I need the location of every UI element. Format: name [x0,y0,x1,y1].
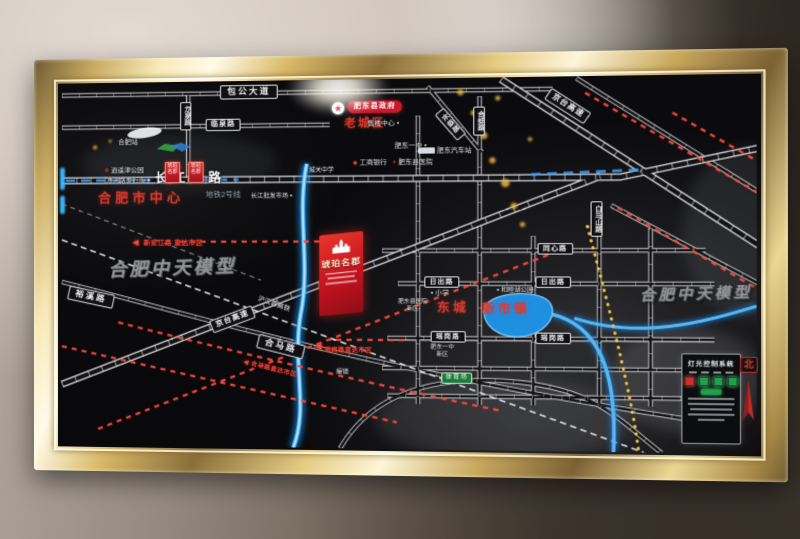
compass-north-label: 北 [740,357,758,373]
dot-icon: ● [290,193,293,198]
road-label-baimashan: 白马山路 [591,201,603,237]
panel-text-line [688,398,734,401]
poi-county-hospital: 肥东县医院 [398,159,432,166]
poi-huaihe-walkstreet: 淮河路步行街 [106,177,145,184]
showroom-photo: 合肥中天模型 合肥中天模型 包公大道 临泉路 龙泉路 合肥站 ❋ 逍遥津公园 淮… [0,0,800,539]
label-dongcheng: 东城 [437,301,469,315]
direction-yaogang: 瑶岗路直达市区 [324,348,372,355]
bank-icon: ◆ [353,160,358,166]
blue-led-bars [60,168,65,214]
dot-icon: ● [424,142,427,147]
panel-text-line [698,419,725,421]
road-label-baogong: 包公大道 [220,85,278,100]
hospital-cross-icon: + [393,160,397,166]
marker-phone-bar [326,280,357,285]
arrow-left-icon: ◀ [132,238,138,247]
poi-bus-station: 肥东汽车站 [437,147,472,155]
road-label-hebeng: 合蚌路 [473,107,485,136]
panel-button-1 [699,377,709,387]
road-label-richu-e: 日出路 [535,276,570,288]
poi-chengguan-school: 城关中学 [309,168,334,175]
poi-hefei-station: 合肥站 [118,139,138,147]
panel-captions [689,371,733,373]
project-marker: 琥珀名郡 [319,231,363,316]
project-marker-name: 琥珀名郡 [321,255,361,271]
watermark-right: 合肥中天模型 [639,283,752,303]
poi-primary-school: 小学 [435,290,449,297]
light-control-panel: 灯光控制系统 [681,353,741,444]
poi-feidong-no1: 肥东一中 [395,142,422,149]
dot-icon: ● [431,290,434,295]
arrow-left-icon: ◀ [315,342,321,351]
poi-sales-center: 售楼中心 [367,120,394,127]
road-label-linquan: 临泉路 [206,119,241,132]
project-banner-a: 琥珀名郡 [165,162,180,183]
watermark-left: 合肥中天模型 [108,256,237,281]
poi-xiaoyaojin: 逍遥津公园 [111,167,144,174]
road-label-tongxin: 同心路 [538,243,573,255]
panel-text-line [688,403,734,406]
road-label-yaogang-w: 瑶岗路 [431,331,466,343]
dot-icon: ● [397,120,400,125]
marker-tagline-bar [328,275,355,280]
building-logo-icon [330,237,353,255]
road-label-yaogang-e: 瑶岗路 [535,333,570,345]
panel-button-power [685,376,695,386]
poi-hospital-new: 肥东县医院新区 [395,299,431,314]
park-icon: ❋ [104,168,109,174]
poi-icbc: 工商银行 [359,159,386,166]
poi-cuozhen: 撮镇 [336,369,349,376]
map-board: 合肥中天模型 合肥中天模型 包公大道 临泉路 龙泉路 合肥站 ❋ 逍遥津公园 淮… [58,74,761,457]
panel-button-3 [728,377,738,387]
dot-icon: ● [147,177,149,182]
panel-button-2 [713,377,723,387]
panel-title: 灯光控制系统 [688,359,734,369]
label-hefei-center: 合肥市中心 [98,191,184,207]
dot-icon: ● [497,287,500,292]
panel-buttons [685,376,738,386]
poi-hemu-lake: 和睦湖公园 [501,288,533,294]
compass-needle-icon [739,376,758,427]
project-banner-b: 琥珀名郡 [188,162,203,183]
panel-receiver-bar [701,389,721,394]
arrow-left-icon: ◀ [243,359,250,366]
poi-stadium: 体育场 [441,372,472,384]
road-label-longquan: 龙泉路 [180,102,192,130]
map-board-wrap: 合肥中天模型 合肥中天模型 包公大道 临泉路 龙泉路 合肥站 ❋ 逍遥津公园 淮… [34,48,788,483]
poi-changjiang-market: 长江批发市场 [251,194,288,200]
direction-xinanjiang: 新安江路 直达市区 [144,240,203,248]
panel-text-line [690,408,732,411]
panel-text-line [688,413,734,416]
poi-school-new: 肥东一中新区 [426,344,458,359]
road-label-richu-w: 日出路 [424,276,459,288]
label-xinshizhen: 新市镇 [482,302,530,316]
road-label-metro2: 地铁2号线 [206,191,241,200]
